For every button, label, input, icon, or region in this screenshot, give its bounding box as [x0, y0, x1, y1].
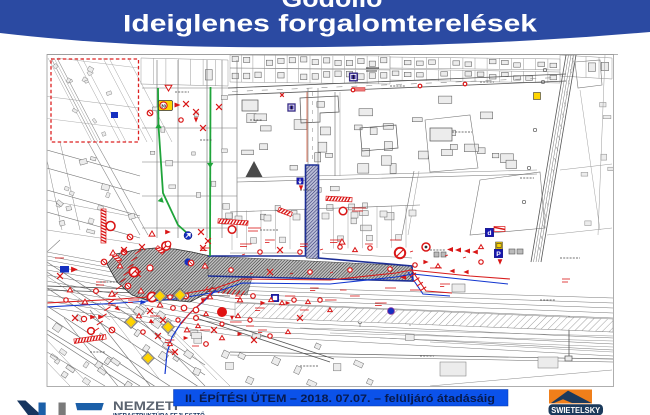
svg-text:d: d	[487, 230, 491, 237]
svg-text:II. ÉPÍTÉSI ÜTEM – 2018. 07.07: II. ÉPÍTÉSI ÜTEM – 2018. 07.07. – felülj…	[185, 392, 495, 405]
svg-text:Ideiglenes forgalomterelések: Ideiglenes forgalomterelések	[123, 11, 537, 38]
svg-text:P: P	[496, 251, 501, 258]
svg-text:30: 30	[161, 104, 167, 109]
svg-text:NEMZETI: NEMZETI	[113, 401, 178, 413]
svg-text:SWIETELSKY: SWIETELSKY	[551, 405, 600, 415]
